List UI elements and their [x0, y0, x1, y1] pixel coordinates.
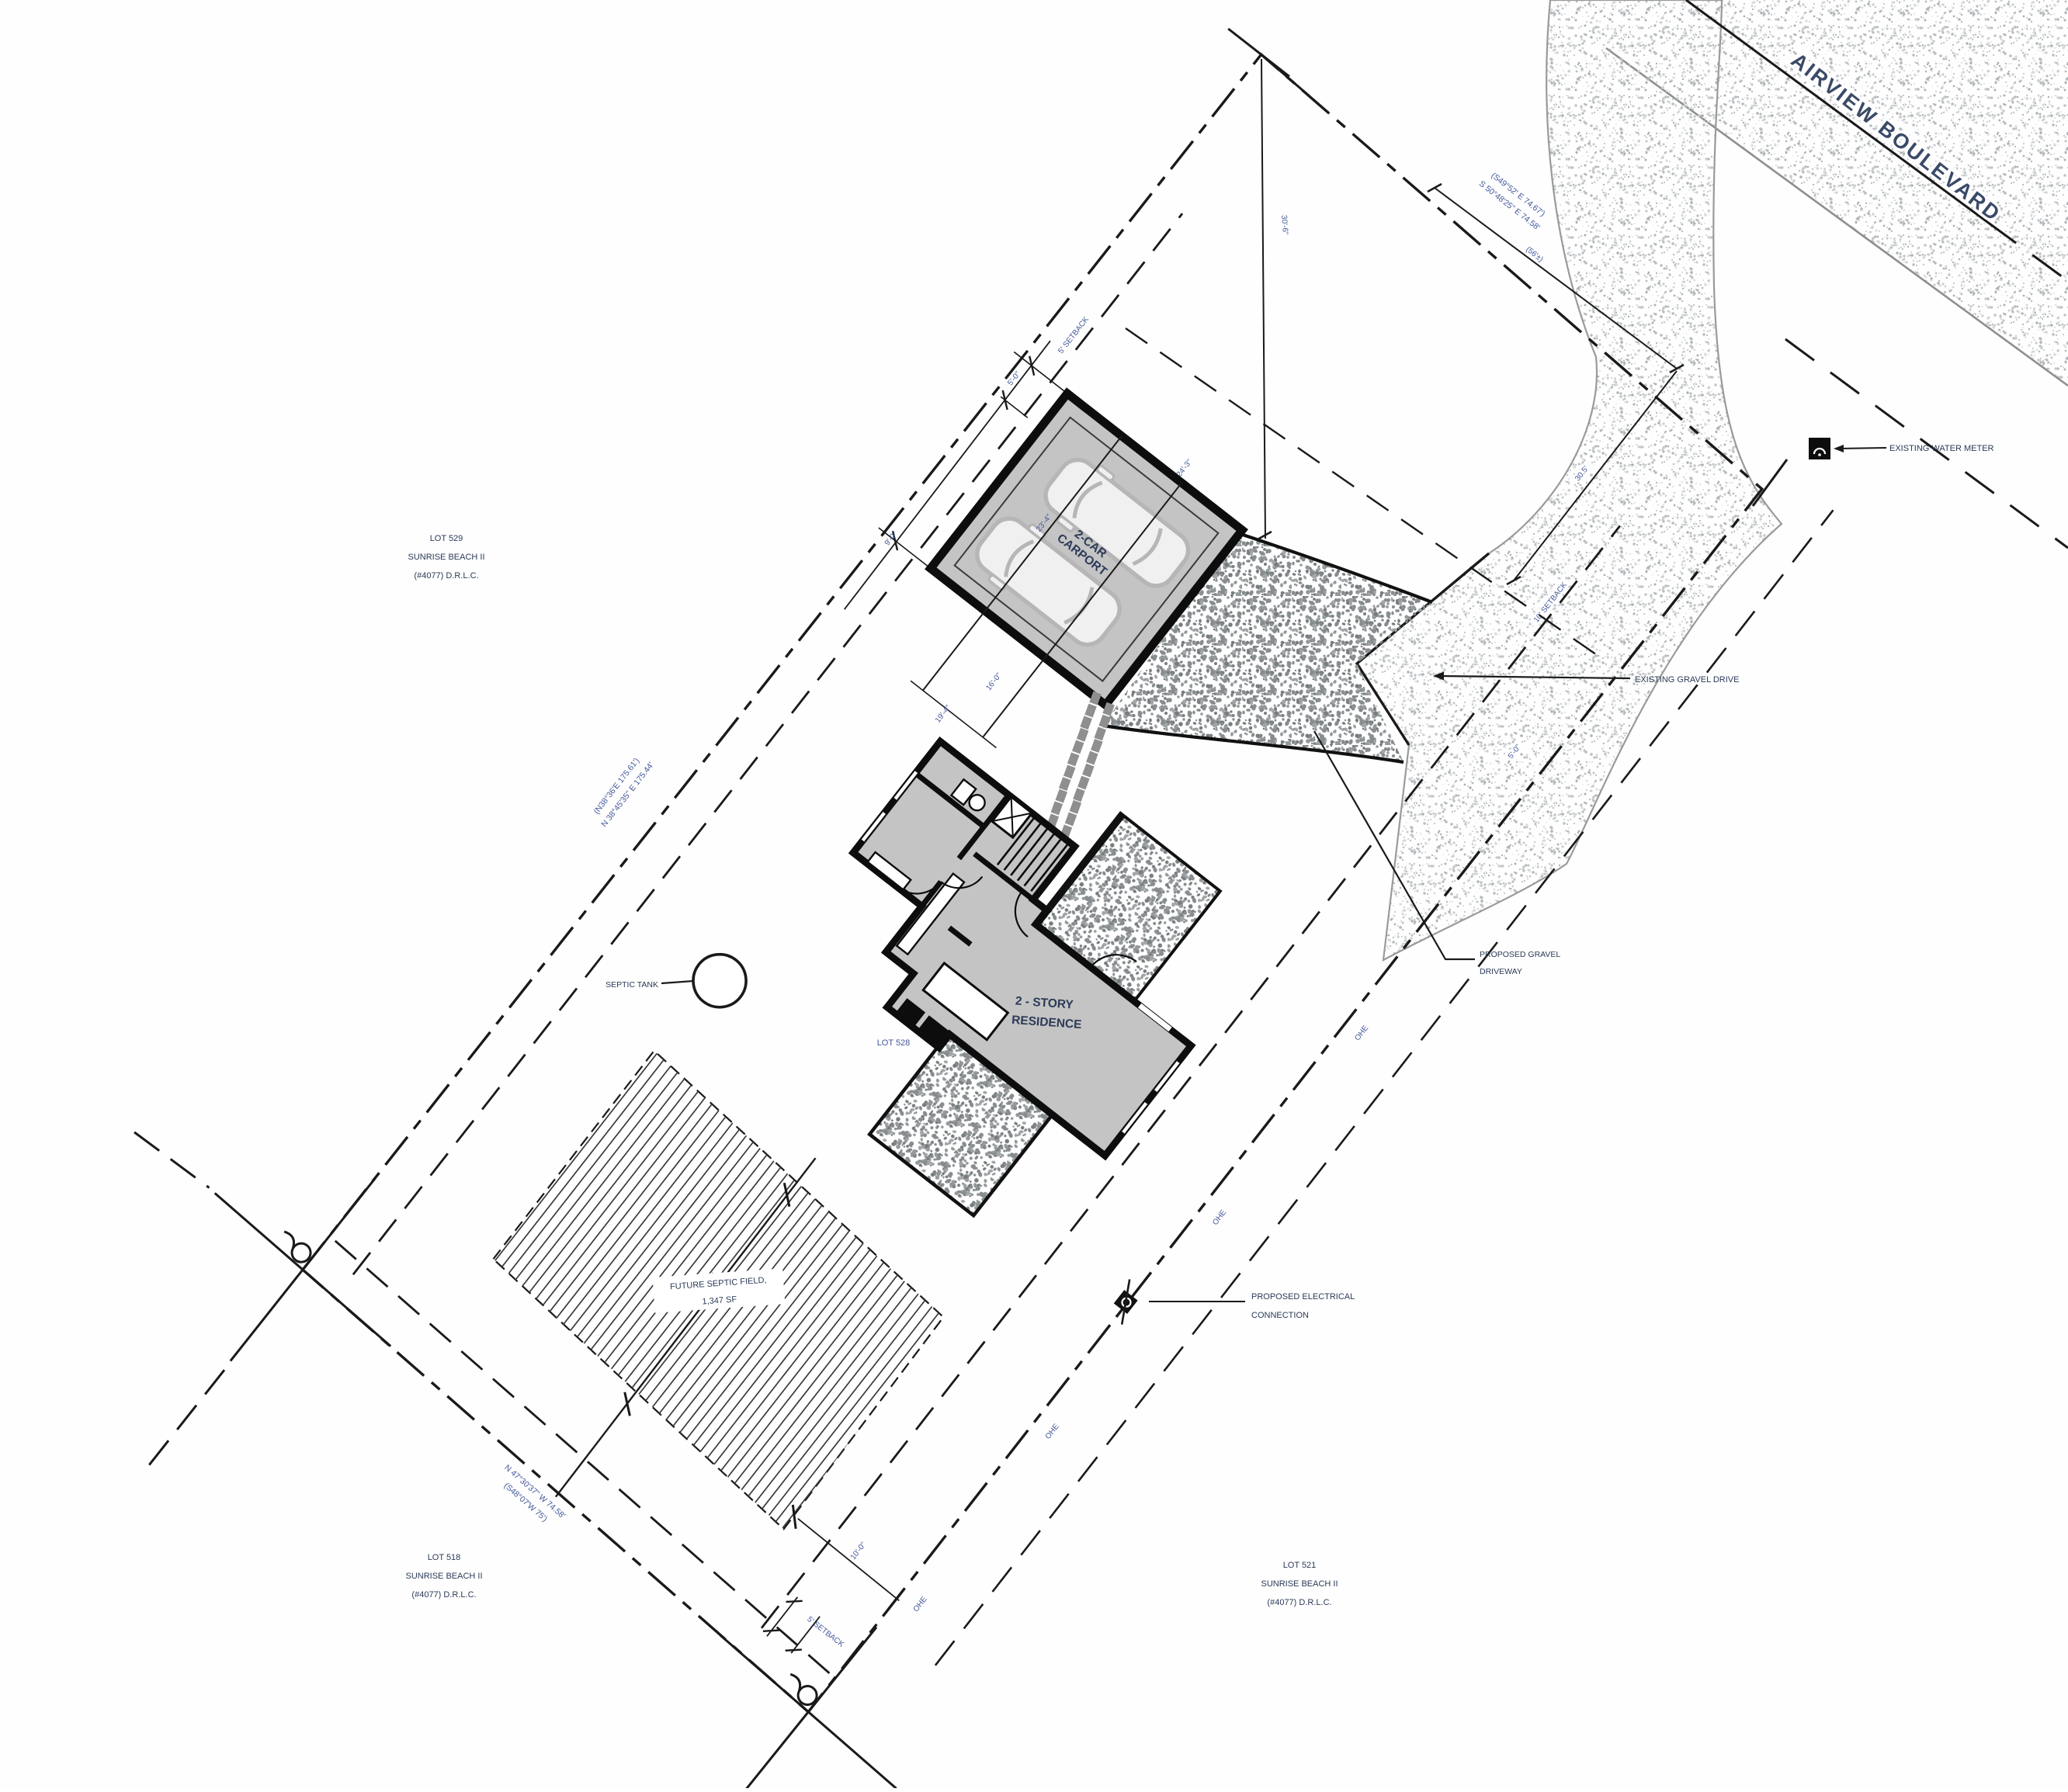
svg-text:(#4077) D.R.L.C.: (#4077) D.R.L.C.	[1267, 1598, 1331, 1607]
svg-text:SUNRISE BEACH II: SUNRISE BEACH II	[405, 1572, 482, 1581]
svg-text:LOT 529: LOT 529	[430, 534, 463, 543]
svg-text:SEPTIC TANK: SEPTIC TANK	[605, 980, 658, 990]
svg-text:DRIVEWAY: DRIVEWAY	[1480, 967, 1522, 976]
svg-text:SUNRISE BEACH II: SUNRISE BEACH II	[408, 553, 484, 562]
svg-text:(#4077) D.R.L.C.: (#4077) D.R.L.C.	[411, 1590, 476, 1600]
svg-text:CONNECTION: CONNECTION	[1251, 1311, 1309, 1320]
svg-text:PROPOSED GRAVEL: PROPOSED GRAVEL	[1480, 950, 1560, 959]
svg-text:(#4077) D.R.L.C.: (#4077) D.R.L.C.	[414, 571, 478, 581]
svg-text:LOT 521: LOT 521	[1283, 1561, 1317, 1570]
svg-text:SUNRISE BEACH II: SUNRISE BEACH II	[1261, 1579, 1338, 1589]
svg-text:PROPOSED ELECTRICAL: PROPOSED ELECTRICAL	[1251, 1292, 1355, 1302]
svg-text:LOT 528: LOT 528	[877, 1038, 911, 1048]
svg-text:EXISTING WATER METER: EXISTING WATER METER	[1889, 444, 1994, 453]
svg-text:30'-6": 30'-6"	[1279, 215, 1289, 236]
svg-text:EXISTING GRAVEL DRIVE: EXISTING GRAVEL DRIVE	[1635, 675, 1739, 685]
svg-text:LOT 518: LOT 518	[428, 1553, 461, 1562]
